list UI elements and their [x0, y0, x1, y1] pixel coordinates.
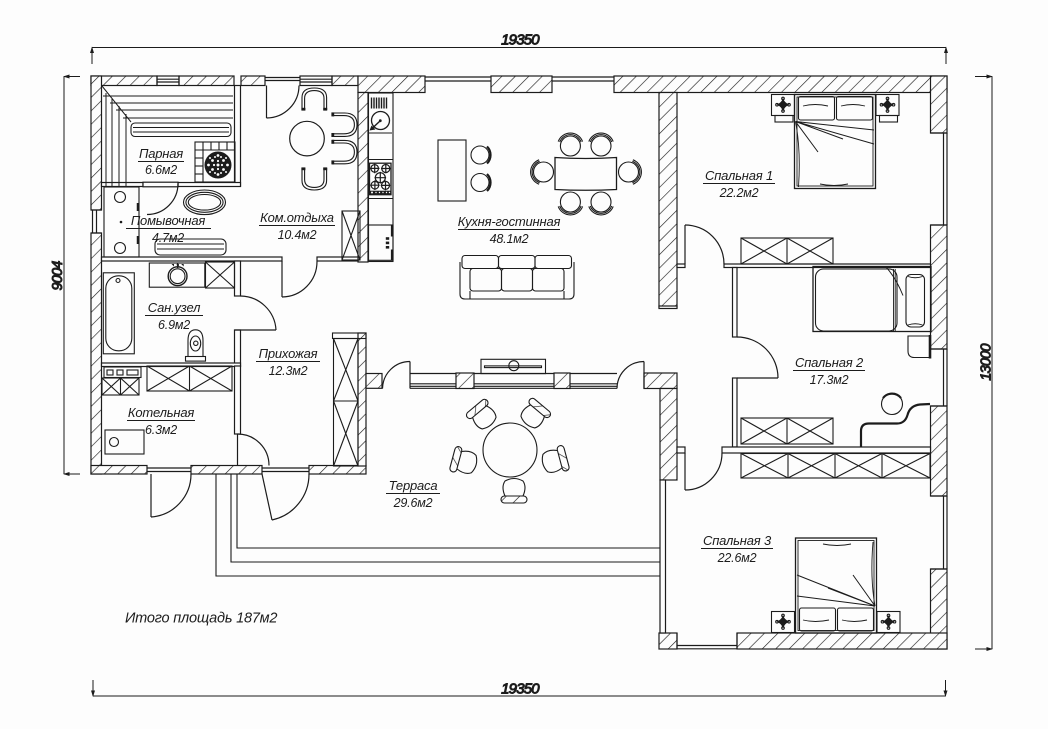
svg-text:22.2м2: 22.2м2: [719, 186, 759, 200]
svg-text:Прихожая: Прихожая: [259, 346, 318, 361]
svg-text:Спальная 3: Спальная 3: [703, 533, 772, 548]
svg-text:13000: 13000: [979, 344, 995, 381]
svg-text:19350: 19350: [501, 32, 540, 49]
svg-text:Ком.отдыха: Ком.отдыха: [260, 210, 334, 225]
svg-text:17.3м2: 17.3м2: [810, 373, 849, 387]
svg-text:Спальная 1: Спальная 1: [705, 168, 773, 183]
svg-text:Помывочная: Помывочная: [131, 213, 206, 228]
svg-text:6.6м2: 6.6м2: [145, 163, 177, 177]
svg-text:Спальная 2: Спальная 2: [795, 355, 864, 370]
svg-text:9004: 9004: [50, 261, 66, 291]
svg-text:6.9м2: 6.9м2: [158, 318, 190, 332]
svg-text:22.6м2: 22.6м2: [717, 551, 757, 565]
svg-text:12.3м2: 12.3м2: [269, 364, 308, 378]
svg-text:10.4м2: 10.4м2: [278, 228, 317, 242]
svg-text:48.1м2: 48.1м2: [490, 232, 529, 246]
svg-text:Терраса: Терраса: [389, 478, 438, 493]
svg-text:Котельная: Котельная: [128, 405, 194, 420]
svg-text:Парная: Парная: [139, 146, 183, 161]
svg-text:Итого площадь 187м2: Итого площадь 187м2: [125, 611, 277, 627]
svg-text:29.6м2: 29.6м2: [393, 496, 433, 510]
svg-text:19350: 19350: [501, 681, 540, 698]
svg-text:Кухня-гостинная: Кухня-гостинная: [458, 214, 561, 229]
svg-text:4.7м2: 4.7м2: [152, 231, 184, 245]
svg-text:Сан.узел: Сан.узел: [148, 300, 201, 315]
svg-text:6.3м2: 6.3м2: [145, 423, 177, 437]
